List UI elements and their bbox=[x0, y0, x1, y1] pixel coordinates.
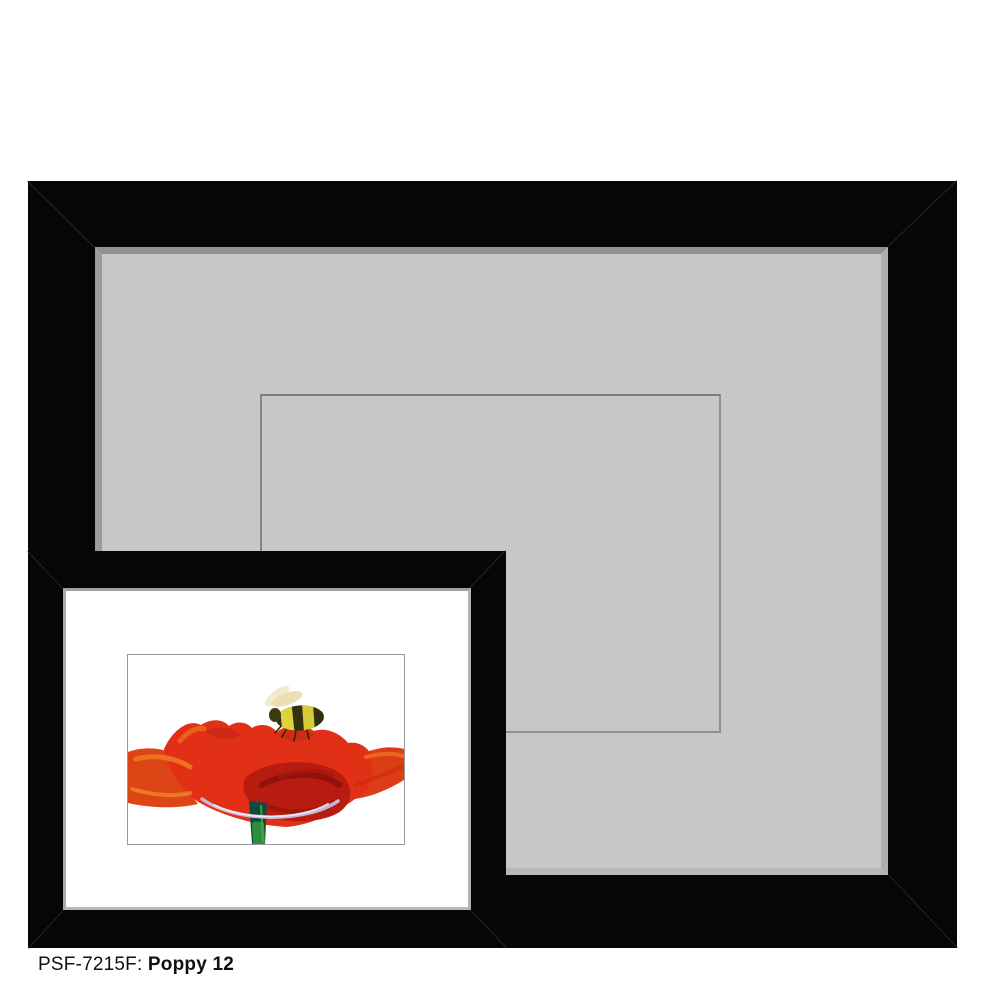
miter-seam-top-left bbox=[27, 551, 63, 589]
miter-seam-top-right bbox=[469, 550, 506, 588]
overlay-frame-moulding bbox=[28, 551, 506, 948]
product-sku: PSF-7215F: bbox=[38, 954, 142, 975]
miter-seam-top-right bbox=[887, 180, 957, 247]
overlay-frame-mat bbox=[63, 588, 471, 910]
poppy-artwork-svg bbox=[128, 655, 404, 844]
product-caption: PSF-7215F: Poppy 12 bbox=[38, 953, 234, 977]
miter-seam-bottom-right bbox=[888, 875, 957, 948]
miter-seam-bottom-right bbox=[470, 910, 507, 948]
miter-seam-bottom-left bbox=[28, 910, 64, 949]
poppy-artwork bbox=[127, 654, 405, 845]
product-mockup-image: PSF-7215F: Poppy 12 bbox=[0, 0, 984, 984]
bee-head bbox=[269, 708, 281, 722]
product-title: Poppy 12 bbox=[148, 954, 234, 975]
miter-seam-top-left bbox=[27, 181, 95, 248]
